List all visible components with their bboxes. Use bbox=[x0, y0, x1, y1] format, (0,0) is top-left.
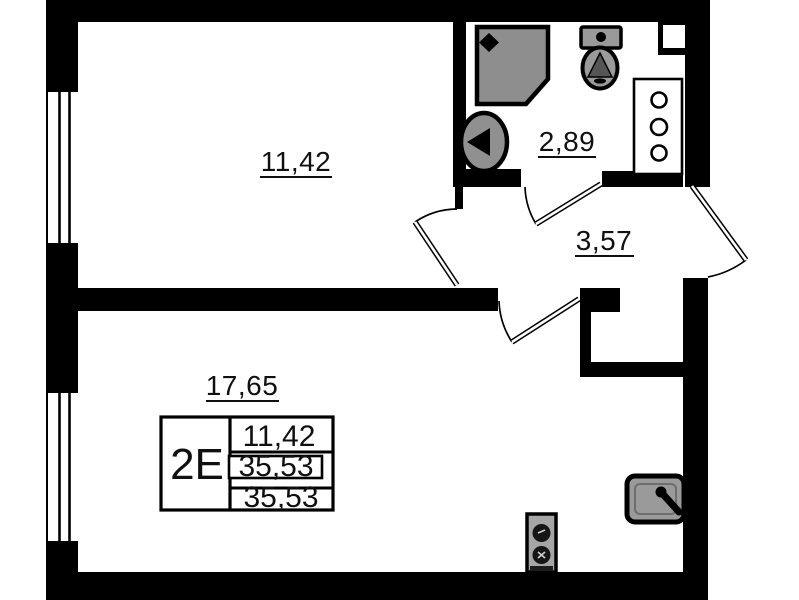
door-room-lower bbox=[499, 299, 579, 342]
hallway-area: 3,57 bbox=[576, 225, 633, 256]
window-glazing bbox=[48, 92, 78, 243]
toilet-bowl-drain bbox=[594, 78, 606, 83]
room-lower-area: 17,65 bbox=[206, 370, 279, 401]
door-leaf bbox=[415, 222, 457, 285]
wall-right-lower bbox=[683, 278, 708, 577]
wall-top bbox=[48, 0, 710, 22]
stamp-total-area: 35,53 bbox=[238, 450, 313, 483]
walls bbox=[46, 0, 710, 600]
utility-shaft-icon bbox=[634, 79, 682, 174]
door-swing bbox=[525, 187, 536, 224]
toilet-tank-button bbox=[596, 32, 606, 42]
stamp-reduced-area: 35,53 bbox=[243, 481, 318, 514]
door-swing bbox=[708, 260, 746, 277]
washbasin-icon bbox=[461, 113, 507, 171]
door-bathroom bbox=[525, 184, 601, 224]
door-swing bbox=[499, 301, 512, 342]
shower-icon bbox=[477, 27, 548, 104]
door-leaf bbox=[512, 299, 579, 342]
window-lower bbox=[48, 393, 78, 541]
unit-info-stamp: 2Е 11,42 35,53 35,53 bbox=[161, 417, 333, 514]
stamp-living-area: 11,42 bbox=[243, 420, 316, 453]
floor-plan-svg: 11,42 2,89 3,57 17,65 2Е 11,42 35,53 35,… bbox=[0, 0, 799, 600]
wall-bottom bbox=[46, 572, 708, 600]
wall-bath-divider bbox=[453, 22, 466, 187]
room-upper-area: 11,42 bbox=[261, 146, 332, 177]
door-room-upper bbox=[415, 209, 457, 285]
wall-hall-bottom bbox=[591, 362, 683, 377]
door-leaf bbox=[692, 186, 746, 260]
window-upper bbox=[48, 92, 78, 243]
shaft-circle bbox=[652, 93, 667, 108]
stove-burner bbox=[533, 524, 551, 542]
wall-hall-chunk bbox=[580, 288, 620, 312]
stove-icon bbox=[527, 514, 556, 572]
wall-notch bbox=[663, 25, 685, 48]
stamp-unit-type: 2Е bbox=[170, 440, 224, 489]
kitchen-sink-icon bbox=[627, 476, 684, 522]
door-leaf bbox=[536, 184, 601, 224]
stove-bottom-strip bbox=[530, 566, 553, 571]
shaft-circle bbox=[651, 119, 667, 135]
wall-middle bbox=[46, 288, 498, 311]
area-labels: 11,42 2,89 3,57 17,65 bbox=[206, 126, 634, 401]
wall-bath-divider-thin bbox=[455, 187, 463, 209]
door-entry bbox=[692, 186, 746, 277]
toilet-icon bbox=[581, 27, 621, 89]
floor-plan: 11,42 2,89 3,57 17,65 2Е 11,42 35,53 35,… bbox=[0, 0, 799, 600]
bathroom-area: 2,89 bbox=[539, 126, 596, 157]
wall-hall-vertical bbox=[580, 312, 591, 377]
window-glazing bbox=[48, 393, 78, 541]
shaft-circle bbox=[652, 146, 667, 161]
wall-bath-right bbox=[685, 22, 710, 187]
door-swing bbox=[415, 209, 457, 222]
